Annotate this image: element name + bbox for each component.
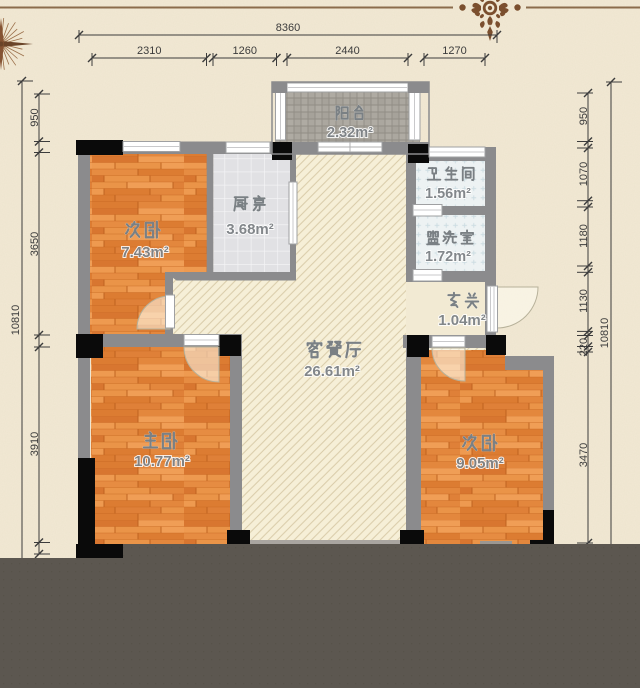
svg-text:3650: 3650 bbox=[29, 232, 41, 256]
svg-text:1.04m²: 1.04m² bbox=[438, 312, 486, 329]
svg-text:1130: 1130 bbox=[578, 289, 590, 313]
svg-text:2.32m²: 2.32m² bbox=[327, 125, 373, 141]
svg-text:2440: 2440 bbox=[335, 45, 359, 57]
svg-text:2310: 2310 bbox=[137, 45, 161, 57]
svg-text:1.72m²: 1.72m² bbox=[425, 249, 471, 265]
svg-text:10810: 10810 bbox=[10, 305, 22, 336]
svg-text:3470: 3470 bbox=[578, 443, 590, 467]
svg-text:220: 220 bbox=[578, 338, 590, 356]
svg-text:7.43m²: 7.43m² bbox=[121, 244, 169, 261]
svg-text:1180: 1180 bbox=[578, 224, 590, 248]
svg-text:3910: 3910 bbox=[29, 432, 41, 456]
svg-text:3.68m²: 3.68m² bbox=[226, 221, 274, 238]
svg-text:950: 950 bbox=[29, 108, 41, 126]
svg-text:1070: 1070 bbox=[578, 162, 590, 186]
svg-text:10810: 10810 bbox=[599, 318, 611, 349]
svg-text:9.05m²: 9.05m² bbox=[456, 455, 504, 472]
svg-text:1.56m²: 1.56m² bbox=[425, 186, 471, 202]
svg-text:1270: 1270 bbox=[442, 45, 466, 57]
svg-text:8360: 8360 bbox=[276, 22, 300, 34]
svg-text:26.61m²: 26.61m² bbox=[304, 363, 360, 380]
svg-text:950: 950 bbox=[578, 107, 590, 125]
svg-text:1260: 1260 bbox=[233, 45, 257, 57]
svg-text:10.77m²: 10.77m² bbox=[134, 453, 190, 470]
